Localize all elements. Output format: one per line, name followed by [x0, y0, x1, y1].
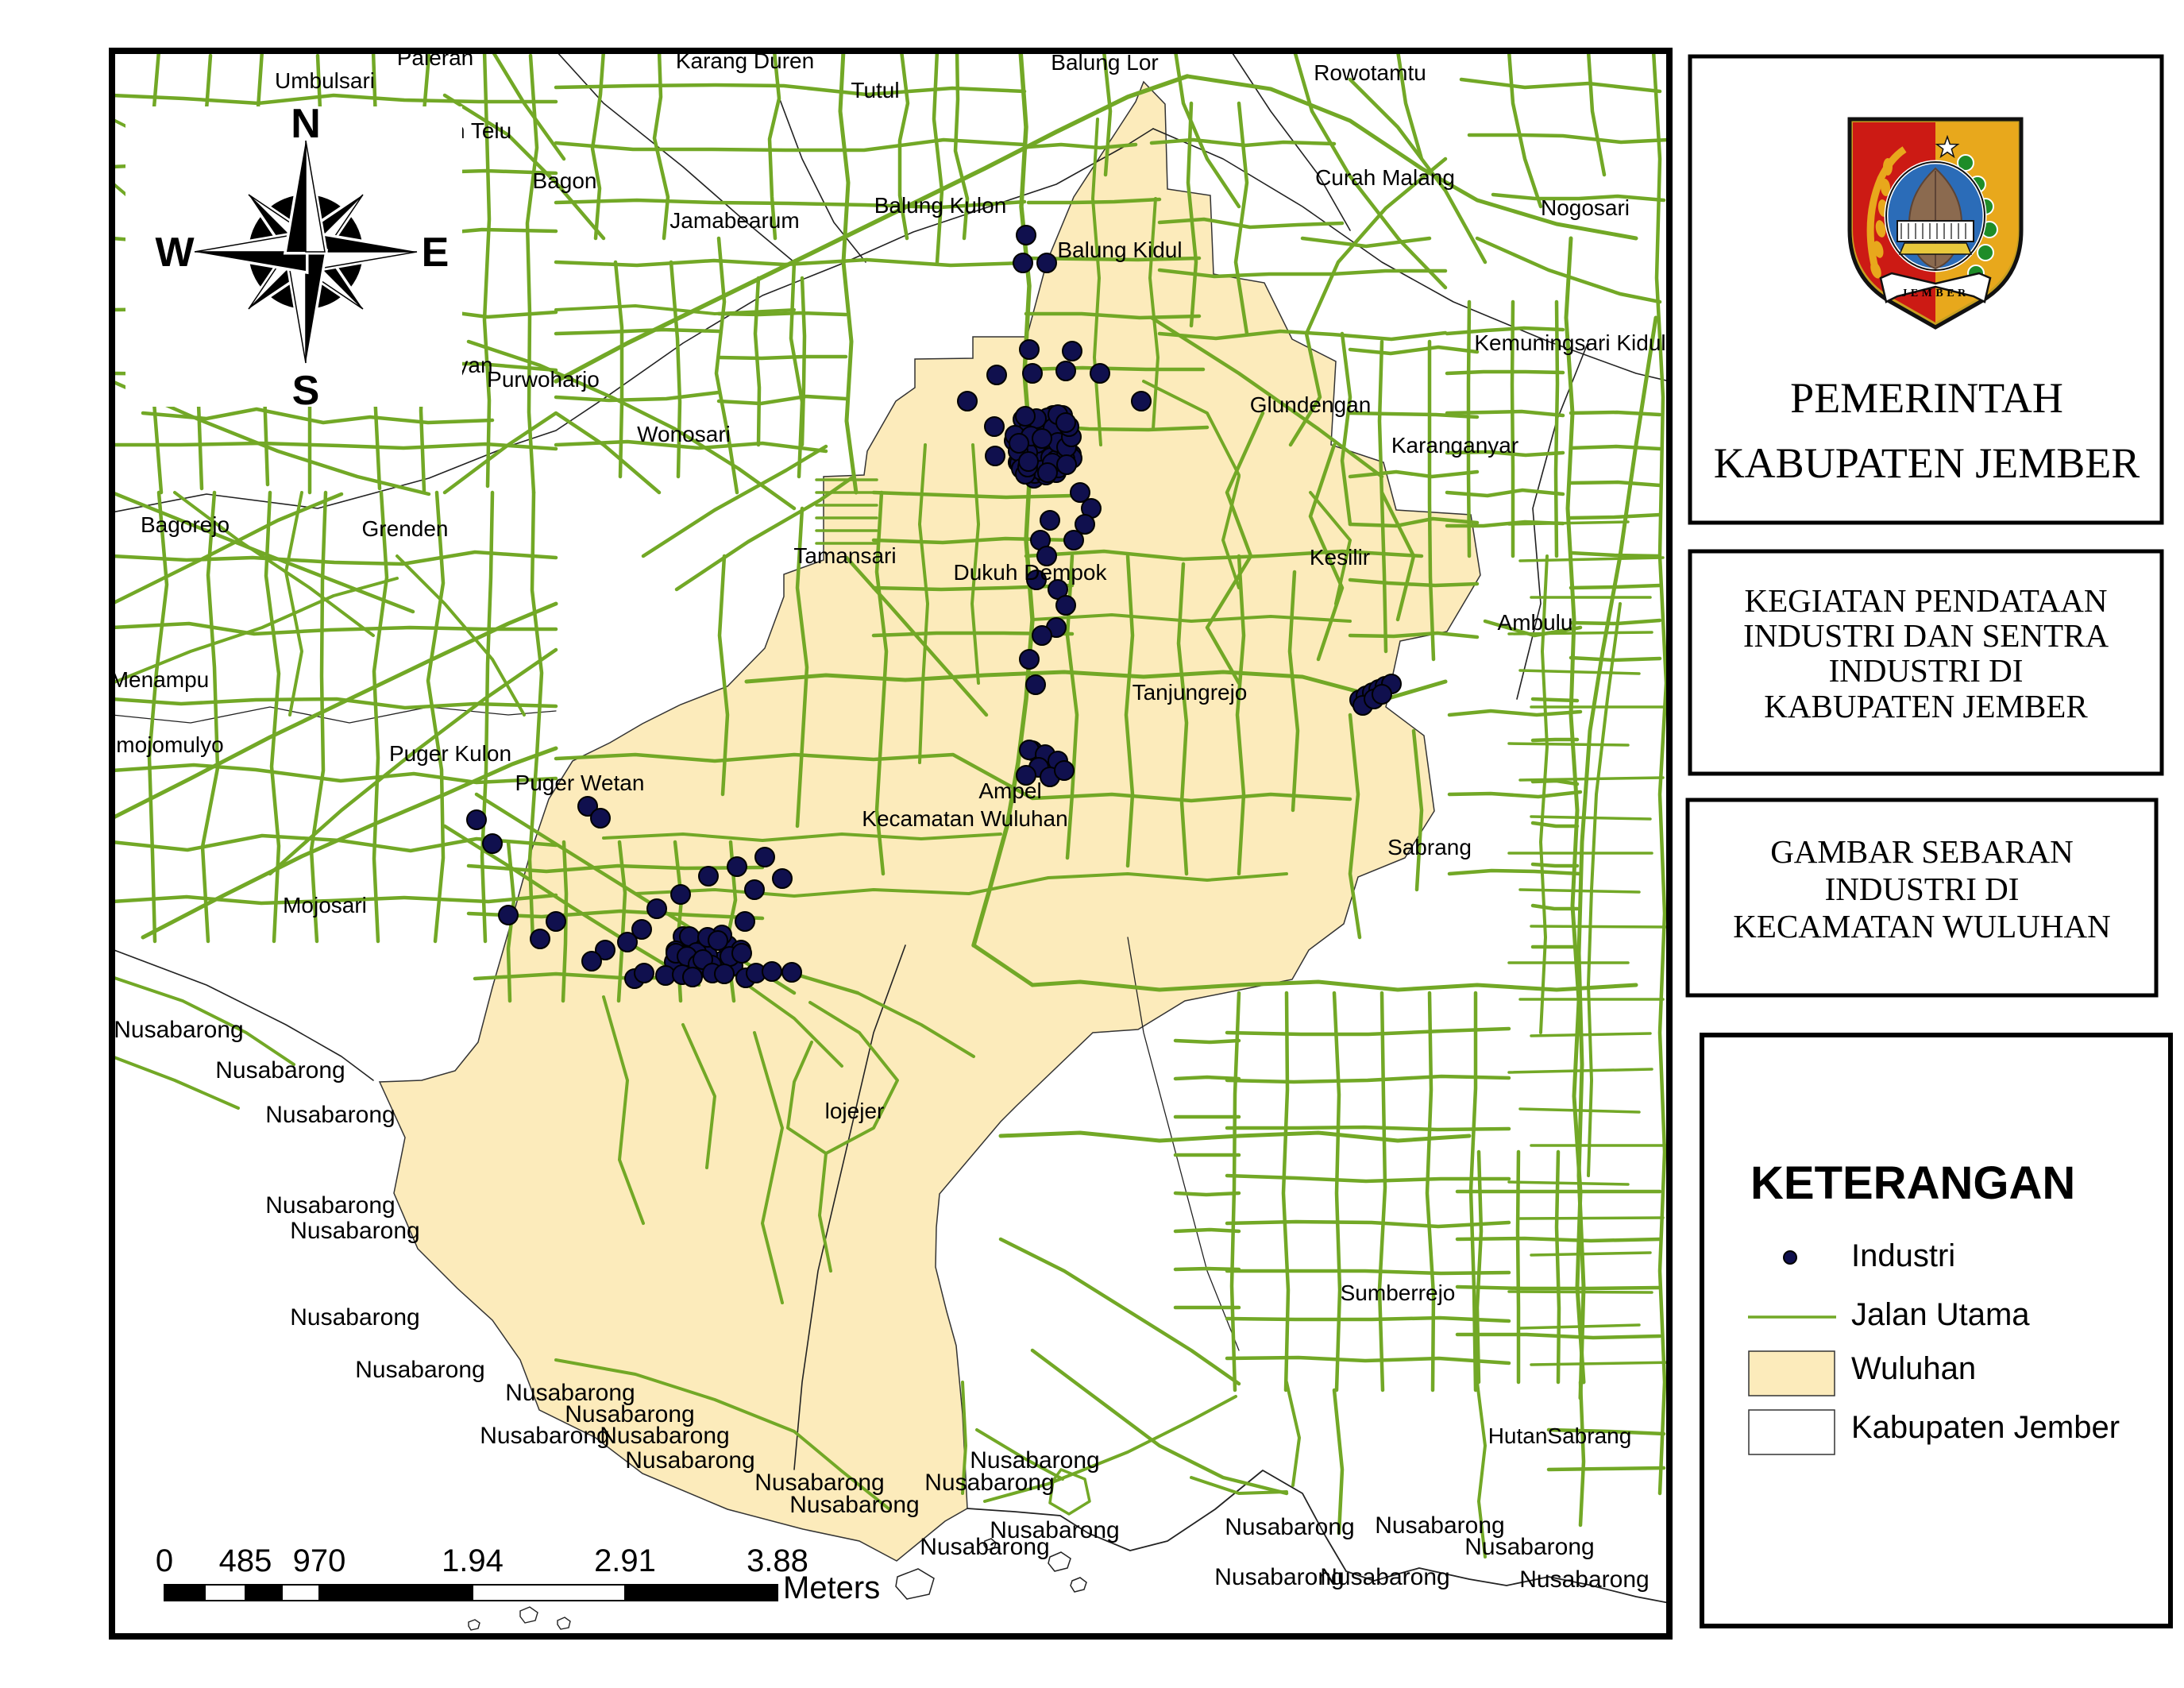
svg-text:Nusabarong: Nusabarong — [789, 1492, 919, 1518]
svg-text:N: N — [291, 101, 321, 147]
svg-text:S: S — [292, 368, 320, 414]
svg-text:Nusabarong: Nusabarong — [114, 1017, 243, 1043]
svg-text:Kesilir: Kesilir — [1310, 545, 1370, 570]
svg-text:Puger Kulon: Puger Kulon — [389, 741, 511, 766]
svg-text:Nusabarong: Nusabarong — [290, 1304, 419, 1331]
svg-text:Nusabarong: Nusabarong — [1464, 1534, 1594, 1560]
svg-text:GAMBAR SEBARAN: GAMBAR SEBARAN — [1770, 833, 2074, 870]
svg-text:Nusabarong: Nusabarong — [920, 1534, 1049, 1560]
svg-text:KECAMATAN WULUHAN: KECAMATAN WULUHAN — [1733, 908, 2110, 944]
svg-text:Industri: Industri — [1851, 1238, 1955, 1273]
svg-text:1.94: 1.94 — [442, 1543, 504, 1578]
svg-text:Wuluhan: Wuluhan — [1851, 1351, 1976, 1386]
svg-text:Glundengan: Glundengan — [1250, 392, 1372, 417]
svg-text:PEMERINTAH: PEMERINTAH — [1790, 374, 2063, 422]
svg-text:Rowotamtu: Rowotamtu — [1314, 60, 1426, 85]
svg-text:Nusabarong: Nusabarong — [625, 1447, 754, 1474]
svg-text:Karanganyar: Karanganyar — [1391, 433, 1518, 458]
svg-text:Mojosari: Mojosari — [283, 893, 367, 917]
svg-text:Ambulu: Ambulu — [1498, 610, 1573, 635]
svg-text:Nusabarong: Nusabarong — [1225, 1514, 1354, 1540]
svg-text:Kecamatan Wuluhan: Kecamatan Wuluhan — [862, 806, 1067, 831]
svg-text:Nusabarong: Nusabarong — [1519, 1566, 1649, 1593]
svg-text:Kemuningsari Kidul: Kemuningsari Kidul — [1474, 330, 1665, 355]
svg-text:Bagon: Bagon — [533, 168, 597, 193]
svg-text:Nusabarong: Nusabarong — [265, 1192, 395, 1219]
svg-text:Nusabarong: Nusabarong — [215, 1057, 345, 1083]
svg-text:W: W — [155, 230, 195, 276]
svg-text:Nusabarong: Nusabarong — [924, 1470, 1054, 1496]
svg-text:0: 0 — [156, 1543, 173, 1578]
svg-text:Purwoharjo: Purwoharjo — [487, 367, 600, 392]
svg-text:Umbulsari: Umbulsari — [275, 68, 375, 93]
svg-text:KETERANGAN: KETERANGAN — [1750, 1157, 2075, 1209]
svg-text:Kabupaten Jember: Kabupaten Jember — [1851, 1410, 2120, 1445]
svg-text:Tamansari: Tamansari — [793, 543, 896, 568]
svg-text:Curah Malang: Curah Malang — [1315, 165, 1455, 190]
svg-text:Jamabearum: Jamabearum — [669, 208, 799, 233]
svg-text:lojejer: lojejer — [825, 1099, 885, 1123]
svg-text:Puger Wetan: Puger Wetan — [515, 771, 645, 795]
svg-text:970: 970 — [293, 1543, 346, 1578]
svg-text:KABUPATEN JEMBER: KABUPATEN JEMBER — [1714, 439, 2140, 487]
svg-text:Ampel: Ampel — [978, 778, 1041, 803]
svg-text:Grenden: Grenden — [362, 516, 449, 541]
svg-text:Dukuh Dempok: Dukuh Dempok — [954, 560, 1108, 585]
svg-text:Tanjungrejo: Tanjungrejo — [1133, 680, 1248, 705]
svg-text:Sabrang: Sabrang — [1387, 835, 1472, 859]
svg-text:Nogosari: Nogosari — [1541, 195, 1630, 220]
svg-text:Balung Kidul: Balung Kidul — [1057, 238, 1182, 262]
svg-text:Balung Kulon: Balung Kulon — [874, 193, 1007, 218]
svg-text:KABUPATEN JEMBER: KABUPATEN JEMBER — [1764, 688, 2088, 724]
svg-text:Bagorejo: Bagorejo — [141, 512, 230, 537]
svg-text:INDUSTRI DI: INDUSTRI DI — [1825, 871, 2020, 907]
svg-text:Nusabarong: Nusabarong — [355, 1357, 484, 1383]
svg-text:Wonosari: Wonosari — [637, 422, 731, 446]
svg-text:Nusabarong: Nusabarong — [290, 1218, 419, 1244]
svg-text:Nusabarong: Nusabarong — [265, 1102, 395, 1128]
svg-text:INDUSTRI DAN SENTRA: INDUSTRI DAN SENTRA — [1743, 617, 2109, 654]
svg-text:HutanSabrang: HutanSabrang — [1488, 1423, 1632, 1448]
svg-text:E: E — [422, 230, 450, 276]
svg-text:mojomulyo: mojomulyo — [116, 732, 223, 757]
svg-text:Nusabarong: Nusabarong — [1320, 1564, 1449, 1590]
svg-text:Nusabarong: Nusabarong — [480, 1423, 609, 1449]
svg-text:2.91: 2.91 — [594, 1543, 656, 1578]
svg-text:Menampu: Menampu — [110, 667, 210, 692]
svg-text:Meters: Meters — [783, 1570, 880, 1605]
svg-text:JEMBER: JEMBER — [1901, 288, 1969, 299]
svg-text:Tutul: Tutul — [851, 78, 899, 102]
svg-text:Sumberrejo: Sumberrejo — [1341, 1280, 1456, 1305]
svg-text:KEGIATAN PENDATAAN: KEGIATAN PENDATAAN — [1745, 582, 2108, 619]
svg-text:485: 485 — [219, 1543, 272, 1578]
svg-text:INDUSTRI DI: INDUSTRI DI — [1829, 652, 2024, 689]
svg-text:Nusabarong: Nusabarong — [600, 1423, 729, 1449]
svg-text:Jalan Utama: Jalan Utama — [1851, 1297, 2030, 1332]
